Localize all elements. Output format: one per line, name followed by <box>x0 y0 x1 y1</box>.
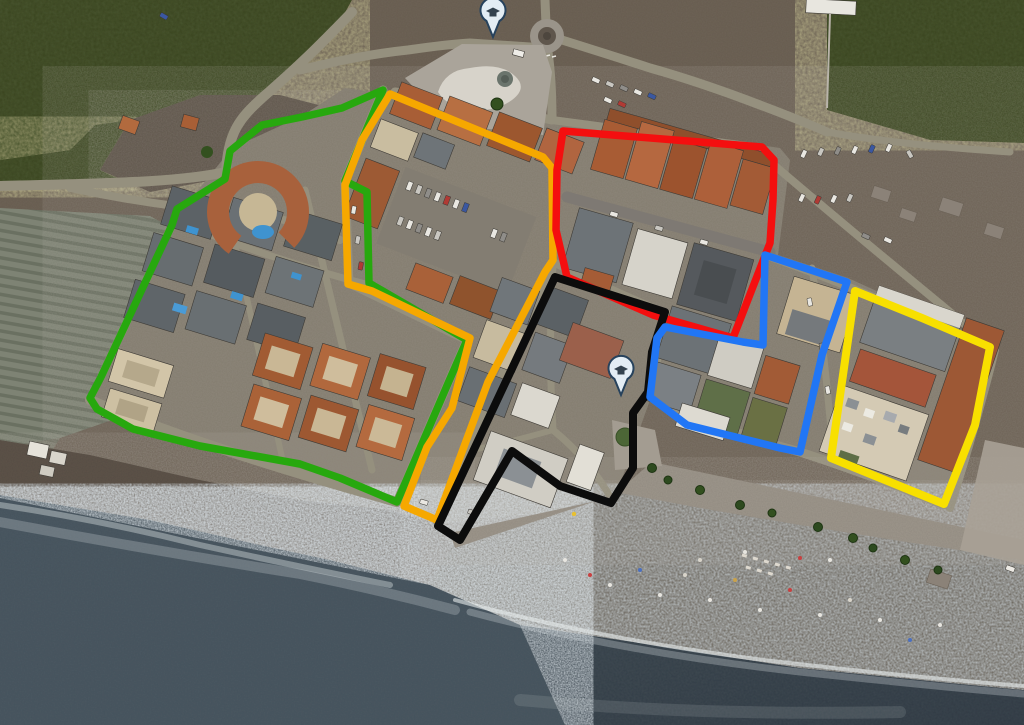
map-canvas <box>0 0 1024 725</box>
satellite-map[interactable] <box>0 0 1024 725</box>
